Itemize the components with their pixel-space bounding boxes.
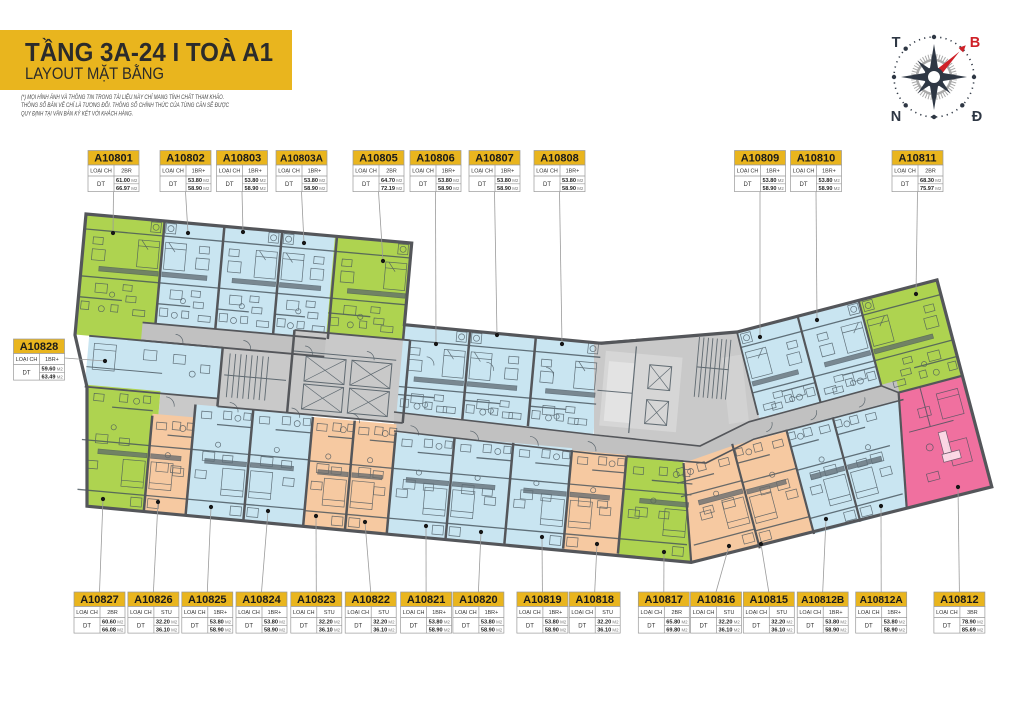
svg-text:A10808: A10808 [540, 153, 579, 165]
svg-text:DT: DT [245, 624, 253, 630]
svg-text:DT: DT [169, 182, 177, 188]
svg-text:LOẠI CH: LOẠI CH [455, 610, 477, 616]
svg-text:2BR: 2BR [121, 169, 132, 175]
svg-text:A10807: A10807 [475, 153, 514, 165]
svg-text:1BR+: 1BR+ [192, 169, 206, 175]
svg-text:LOẠI CH: LOẠI CH [293, 610, 315, 616]
svg-text:A10823: A10823 [297, 594, 336, 606]
svg-text:LOẠI CH: LOẠI CH [162, 169, 184, 175]
svg-text:STU: STU [378, 610, 389, 616]
svg-text:1BR+: 1BR+ [248, 169, 262, 175]
svg-text:LOẠI CH: LOẠI CH [858, 610, 880, 616]
svg-text:DT: DT [354, 624, 362, 630]
svg-text:STU: STU [324, 610, 335, 616]
svg-text:DT: DT [901, 182, 909, 188]
svg-text:DT: DT [191, 624, 199, 630]
svg-text:DT: DT [478, 182, 486, 188]
svg-text:1BR+: 1BR+ [308, 169, 322, 175]
svg-text:A10828: A10828 [20, 341, 59, 353]
svg-text:A10801: A10801 [94, 153, 133, 165]
svg-text:DT: DT [800, 182, 808, 188]
svg-text:LOẠI CH: LOẠI CH [571, 610, 593, 616]
svg-text:T: T [892, 35, 901, 51]
svg-text:STU: STU [724, 610, 735, 616]
svg-text:1BR+: 1BR+ [829, 610, 843, 616]
svg-text:1BR+: 1BR+ [566, 169, 580, 175]
svg-text:THÔNG SỐ BẢN VẼ CHỈ LÀ TƯƠNG Đ: THÔNG SỐ BẢN VẼ CHỈ LÀ TƯƠNG ĐỐI. THÔNG … [21, 100, 229, 109]
svg-text:N: N [891, 109, 901, 125]
svg-text:DT: DT [543, 182, 551, 188]
svg-text:A10827: A10827 [80, 594, 119, 606]
svg-text:A10821: A10821 [407, 594, 446, 606]
svg-text:DT: DT [744, 182, 752, 188]
svg-text:A10825: A10825 [188, 594, 227, 606]
svg-text:A10810: A10810 [797, 153, 836, 165]
svg-text:A10815: A10815 [750, 594, 789, 606]
svg-text:B: B [970, 35, 980, 51]
svg-text:A10812B: A10812B [801, 595, 844, 606]
svg-text:A10822: A10822 [351, 594, 390, 606]
svg-text:3BR: 3BR [967, 610, 978, 616]
svg-text:LOẠI CH: LOẠI CH [471, 169, 493, 175]
svg-text:LAYOUT MẶT BẰNG: LAYOUT MẶT BẰNG [25, 64, 164, 83]
svg-text:DT: DT [362, 182, 370, 188]
svg-text:1BR+: 1BR+ [766, 169, 780, 175]
svg-text:LOẠI CH: LOẠI CH [130, 610, 152, 616]
svg-text:LOẠI CH: LOẠI CH [536, 169, 558, 175]
svg-text:1BR+: 1BR+ [45, 357, 59, 363]
svg-text:A10803A: A10803A [280, 154, 324, 165]
svg-text:LOẠI CH: LOẠI CH [90, 169, 112, 175]
svg-text:DT: DT [462, 624, 470, 630]
svg-text:LOẠI CH: LOẠI CH [936, 610, 958, 616]
svg-text:1BR+: 1BR+ [822, 169, 836, 175]
svg-text:DT: DT [410, 624, 418, 630]
svg-text:2BR: 2BR [386, 169, 397, 175]
svg-text:DT: DT [137, 624, 145, 630]
svg-text:LOẠI CH: LOẠI CH [746, 610, 768, 616]
svg-text:A10806: A10806 [416, 153, 455, 165]
svg-text:(*) MỌI HÌNH ẢNH VÀ THÔNG TIN: (*) MỌI HÌNH ẢNH VÀ THÔNG TIN TRONG TÀI … [21, 92, 224, 101]
svg-text:1BR+: 1BR+ [268, 610, 282, 616]
svg-text:A10819: A10819 [523, 594, 562, 606]
svg-text:TẦNG 3A-24 I TOÀ A1: TẦNG 3A-24 I TOÀ A1 [25, 37, 273, 67]
svg-text:DT: DT [97, 182, 105, 188]
svg-text:DT: DT [226, 182, 234, 188]
svg-text:LOẠI CH: LOẠI CH [519, 610, 541, 616]
svg-text:LOẠI CH: LOẠI CH [403, 610, 425, 616]
svg-text:2BR: 2BR [107, 610, 118, 616]
svg-text:DT: DT [23, 371, 31, 377]
svg-text:A10817: A10817 [645, 594, 684, 606]
svg-text:LOẠI CH: LOẠI CH [793, 169, 815, 175]
svg-text:LOẠI CH: LOẠI CH [219, 169, 241, 175]
svg-text:DT: DT [700, 624, 708, 630]
svg-text:LOẠI CH: LOẠI CH [355, 169, 377, 175]
svg-text:A10816: A10816 [697, 594, 736, 606]
svg-text:LOẠI CH: LOẠI CH [238, 610, 260, 616]
svg-text:DT: DT [83, 624, 91, 630]
svg-text:DT: DT [285, 182, 293, 188]
svg-text:STU: STU [776, 610, 787, 616]
svg-text:A10812A: A10812A [860, 595, 904, 606]
svg-text:2BR: 2BR [925, 169, 936, 175]
svg-text:1BR+: 1BR+ [213, 610, 227, 616]
svg-text:DT: DT [647, 624, 655, 630]
svg-text:LOẠI CH: LOẠI CH [347, 610, 369, 616]
svg-text:STU: STU [602, 610, 613, 616]
svg-text:DT: DT [578, 624, 586, 630]
svg-text:A10826: A10826 [134, 594, 173, 606]
svg-text:STU: STU [161, 610, 172, 616]
svg-text:LOẠI CH: LOẠI CH [799, 610, 821, 616]
svg-text:DT: DT [806, 624, 814, 630]
svg-text:LOẠI CH: LOẠI CH [412, 169, 434, 175]
svg-text:A10820: A10820 [459, 594, 498, 606]
svg-text:A10803: A10803 [223, 153, 262, 165]
svg-text:A10811: A10811 [899, 153, 937, 165]
svg-text:A10812: A10812 [940, 594, 979, 606]
svg-text:1BR+: 1BR+ [442, 169, 456, 175]
svg-text:1BR+: 1BR+ [501, 169, 515, 175]
svg-text:DT: DT [865, 624, 873, 630]
svg-text:QUY ĐỊNH TẠI VĂN BẢN KÝ KẾT VỚ: QUY ĐỊNH TẠI VĂN BẢN KÝ KẾT VỚI KHÁCH HÀ… [21, 108, 133, 117]
svg-text:LOẠI CH: LOẠI CH [693, 610, 715, 616]
svg-text:DT: DT [526, 624, 534, 630]
svg-text:1BR+: 1BR+ [549, 610, 563, 616]
svg-text:LOẠI CH: LOẠI CH [641, 610, 663, 616]
svg-text:LOẠI CH: LOẠI CH [16, 357, 38, 363]
svg-text:LOẠI CH: LOẠI CH [894, 169, 916, 175]
svg-text:A10824: A10824 [242, 594, 281, 606]
svg-text:1BR+: 1BR+ [432, 610, 446, 616]
svg-text:DT: DT [419, 182, 427, 188]
svg-text:LOẠI CH: LOẠI CH [184, 610, 206, 616]
svg-text:DT: DT [943, 624, 951, 630]
svg-text:A10809: A10809 [741, 153, 780, 165]
svg-text:2BR: 2BR [672, 610, 683, 616]
svg-text:1BR+: 1BR+ [887, 610, 901, 616]
svg-text:DT: DT [752, 624, 760, 630]
svg-text:DT: DT [300, 624, 308, 630]
svg-text:A10818: A10818 [575, 594, 614, 606]
svg-text:LOẠI CH: LOẠI CH [278, 169, 300, 175]
svg-text:Đ: Đ [972, 109, 982, 125]
svg-text:A10805: A10805 [359, 153, 398, 165]
svg-text:A10802: A10802 [166, 153, 205, 165]
svg-text:LOẠI CH: LOẠI CH [76, 610, 98, 616]
svg-text:LOẠI CH: LOẠI CH [737, 169, 759, 175]
svg-text:1BR+: 1BR+ [485, 610, 499, 616]
